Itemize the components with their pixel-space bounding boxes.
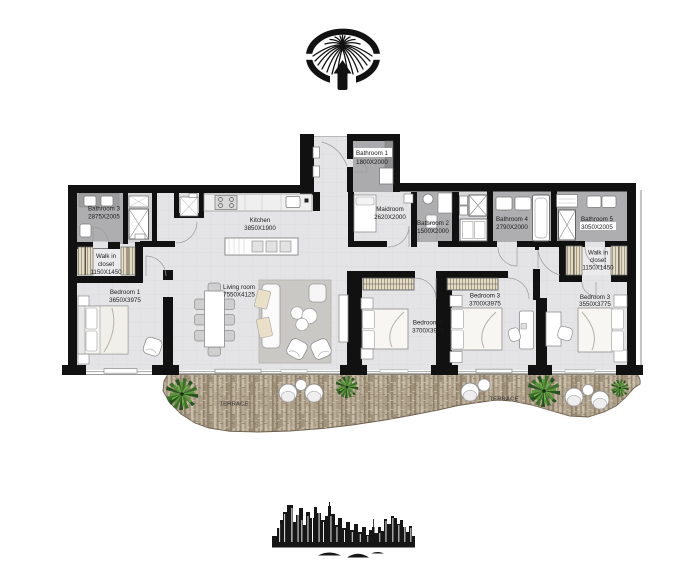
svg-text:closet: closet — [590, 257, 606, 264]
svg-text:Kitchen: Kitchen — [250, 217, 271, 224]
svg-text:7550X4125: 7550X4125 — [223, 292, 255, 299]
svg-text:Bathroom 2: Bathroom 2 — [417, 220, 450, 227]
svg-text:Bathroom 5: Bathroom 5 — [581, 216, 614, 223]
svg-text:3050X2005: 3050X2005 — [581, 224, 613, 231]
svg-text:Bedroom 3: Bedroom 3 — [580, 294, 611, 301]
svg-text:Bathroom 3: Bathroom 3 — [88, 206, 121, 213]
svg-text:Maidroom: Maidroom — [376, 206, 404, 213]
svg-text:3700X3975: 3700X3975 — [469, 301, 501, 308]
svg-text:Bedroom 2: Bedroom 2 — [413, 320, 444, 327]
svg-text:Bedroom 3: Bedroom 3 — [470, 293, 501, 300]
svg-text:Bedroom 1: Bedroom 1 — [110, 289, 141, 296]
svg-text:3650X3975: 3650X3975 — [109, 297, 141, 304]
svg-text:2620X2000: 2620X2000 — [374, 214, 406, 221]
svg-text:3700X3975: 3700X3975 — [412, 328, 444, 335]
svg-text:Bathroom 1: Bathroom 1 — [356, 150, 389, 157]
svg-text:1150X1450: 1150X1450 — [582, 265, 614, 272]
svg-text:Walk in: Walk in — [96, 253, 117, 260]
svg-text:TERRACE: TERRACE — [489, 397, 518, 403]
svg-text:Bathroom 4: Bathroom 4 — [496, 216, 529, 223]
svg-text:1150X1450: 1150X1450 — [90, 269, 122, 276]
svg-text:1500X2000: 1500X2000 — [417, 228, 449, 235]
svg-text:Walk in: Walk in — [588, 250, 609, 257]
svg-text:3550X3775: 3550X3775 — [579, 301, 611, 308]
svg-text:closet: closet — [98, 261, 114, 268]
svg-text:3850X1900: 3850X1900 — [244, 225, 276, 232]
svg-text:2790X2000: 2790X2000 — [496, 224, 528, 231]
svg-text:2875X2005: 2875X2005 — [88, 214, 120, 221]
svg-text:Living room: Living room — [223, 284, 255, 291]
svg-text:TERRACE: TERRACE — [219, 402, 248, 408]
svg-text:1800X2000: 1800X2000 — [356, 159, 388, 166]
